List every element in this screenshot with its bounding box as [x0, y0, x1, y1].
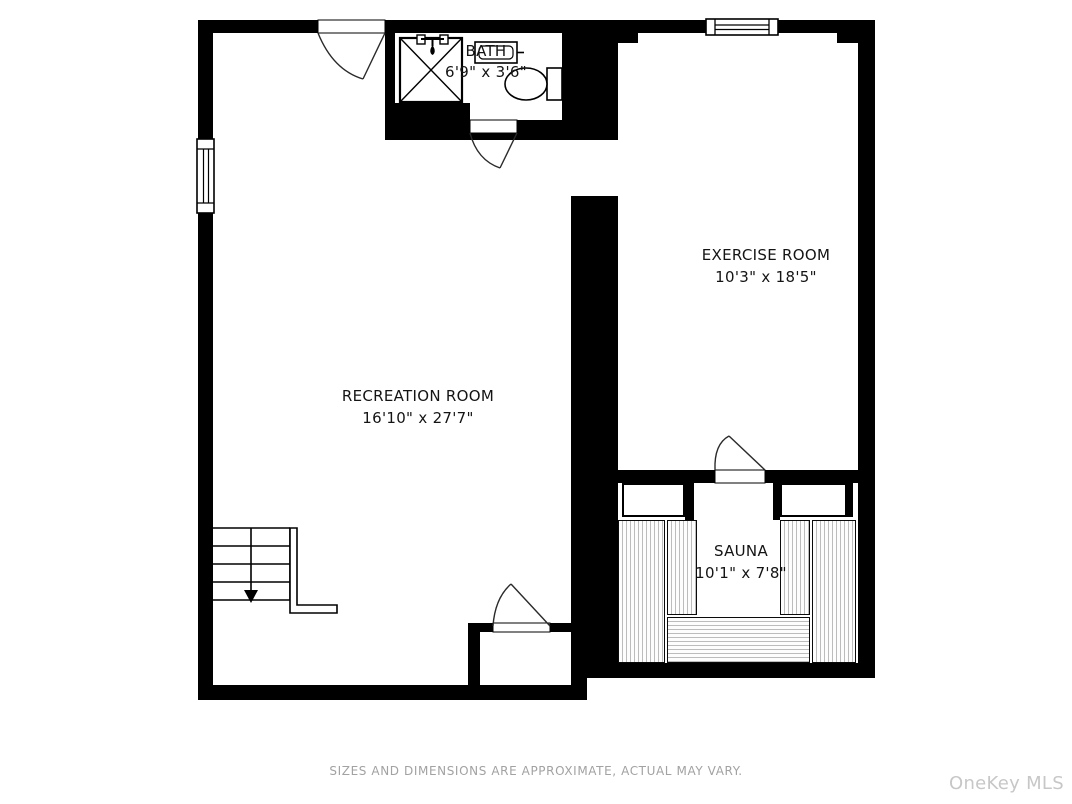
wall	[571, 677, 587, 700]
wall	[480, 623, 493, 632]
room-label-sauna: SAUNA 10'1" x 7'8"	[695, 540, 787, 584]
door-swing-icon	[493, 584, 550, 632]
window-icon	[197, 139, 214, 213]
wall	[587, 663, 875, 678]
wall	[395, 103, 470, 120]
floor-plan-canvas: RECREATION ROOM 16'10" x 27'7" EXERCISE …	[0, 0, 1072, 804]
wall	[550, 623, 571, 632]
room-name: RECREATION ROOM	[342, 385, 494, 407]
room-dimensions: 10'1" x 7'8"	[695, 562, 787, 584]
wall	[618, 470, 858, 483]
stairs-down-arrow-icon	[244, 590, 258, 603]
wall	[571, 196, 618, 677]
room-name: EXERCISE ROOM	[702, 244, 830, 266]
sauna-bench	[618, 520, 665, 663]
room-name: SAUNA	[695, 540, 787, 562]
room-label-recreation: RECREATION ROOM 16'10" x 27'7"	[342, 385, 494, 429]
sauna-partition	[847, 483, 853, 517]
room-dimensions: 6'9" x 3'6"	[445, 62, 527, 83]
room-dimensions: 10'3" x 18'5"	[702, 266, 830, 288]
wall	[837, 33, 858, 43]
disclaimer-text: SIZES AND DIMENSIONS ARE APPROXIMATE, AC…	[329, 764, 742, 778]
wall	[618, 33, 638, 43]
room-label-exercise: EXERCISE ROOM 10'3" x 18'5"	[702, 244, 830, 288]
room-label-bath: BATH 6'9" x 3'6"	[445, 41, 527, 83]
wall	[198, 20, 213, 140]
watermark-text: OneKey MLS	[949, 773, 1064, 794]
wall	[198, 685, 468, 700]
door-swing-icon	[318, 20, 385, 79]
sauna-partition	[685, 483, 694, 520]
wall	[198, 20, 318, 33]
sauna-bench	[667, 617, 810, 663]
sauna-partition	[773, 483, 780, 520]
sauna-compartment	[780, 483, 847, 517]
wall	[618, 20, 875, 33]
sauna-bench	[812, 520, 856, 663]
wall	[198, 212, 213, 700]
sauna-bench	[667, 520, 697, 615]
wall	[468, 685, 571, 700]
room-name: BATH	[445, 41, 527, 62]
room-dimensions: 16'10" x 27'7"	[342, 407, 494, 429]
wall	[858, 20, 875, 678]
staircase-icon	[213, 528, 337, 613]
stair-handrail	[290, 528, 337, 613]
sauna-compartment	[622, 483, 685, 517]
